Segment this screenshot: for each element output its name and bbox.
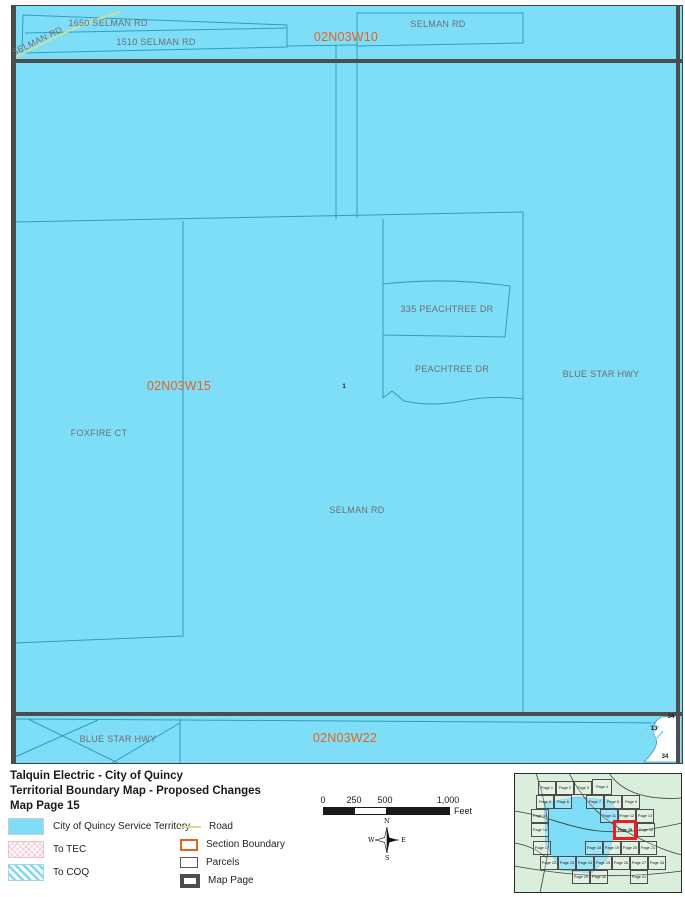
road-swatch-icon: [180, 826, 201, 828]
scale-bar-track: [323, 807, 450, 815]
legend-item-parcels-label: Parcels: [206, 857, 239, 868]
compass-s-label: S: [385, 854, 389, 862]
territory-swatch-icon: [8, 818, 44, 835]
inset-cell-page-21: Page 21: [639, 841, 657, 855]
inset-cell-page-17: Page 17: [533, 841, 551, 855]
inset-cell-page-27: Page 27: [630, 856, 648, 870]
parcel-label-1650-selman-rd: 1650 SELMAN RD: [68, 18, 147, 28]
small-label-1: 1: [342, 384, 345, 390]
legend-line-symbols: RoadSection BoundaryParcelsMap Page: [180, 820, 285, 887]
legend-item-to-tec: To TEC: [8, 841, 190, 858]
inset-cell-page-4: Page 4: [592, 779, 612, 795]
map-title-line1: Talquin Electric - City of Quincy: [10, 769, 261, 784]
scale-tick-250: 250: [346, 795, 361, 805]
inset-cell-page-6: Page 6: [554, 795, 572, 809]
road-label-peachtree-dr: PEACHTREE DR: [415, 364, 489, 374]
scale-tick-500: 500: [377, 795, 392, 805]
scale-segment-1: [355, 808, 386, 814]
legend-item-map-page: Map Page: [180, 874, 285, 887]
tec-swatch-icon: [8, 841, 44, 858]
title-block: Talquin Electric - City of Quincy Territ…: [10, 769, 261, 814]
parcel-label-1510-selman-rd: 1510 SELMAN RD: [116, 37, 195, 47]
inset-cell-page-20: Page 20: [621, 841, 639, 855]
legend-item-to-tec-label: To TEC: [53, 844, 86, 855]
map-title-line3: Map Page 15: [10, 799, 261, 814]
inset-cell-page-29: Page 29: [572, 870, 590, 884]
legend-item-road: Road: [180, 820, 285, 833]
scale-bar-unit: Feet: [454, 806, 472, 816]
inset-cell-page-19: Page 19: [603, 841, 621, 855]
inset-cell-page-30: Page 30: [590, 870, 608, 884]
scale-bar: Feet 02505001,000: [323, 795, 483, 817]
inset-cell-page-15: Page 15: [613, 820, 637, 840]
mappage-swatch-icon: [180, 874, 200, 888]
legend-item-section-boundary-label: Section Boundary: [206, 839, 285, 850]
legend-item-road-label: Road: [209, 821, 233, 832]
legend-item-map-page-label: Map Page: [208, 875, 254, 886]
parcel-label-335-peachtree-dr: 335 PEACHTREE DR: [401, 304, 494, 314]
inset-cell-page-10: Page 10: [531, 809, 549, 823]
inset-overview-map: Page 1Page 2Page 3Page 4Page 5Page 6Page…: [514, 773, 682, 893]
inset-cell-page-28: Page 28: [648, 856, 666, 870]
map-title-line2: Territorial Boundary Map - Proposed Chan…: [10, 784, 261, 799]
scale-tick-0: 0: [320, 795, 325, 805]
small-label-34-bottom: 34: [662, 754, 669, 760]
small-label-34-top: 34: [668, 714, 675, 720]
inset-cell-page-23: Page 23: [558, 856, 576, 870]
road-label-selman-rd-diagonal: SELMAN RD: [10, 24, 64, 57]
map-labels-layer: SELMAN RD1650 SELMAN RD1510 SELMAN RDSEL…: [0, 0, 685, 768]
scale-tick-1000: 1,000: [437, 795, 460, 805]
inset-cell-page-13: Page 13: [636, 809, 654, 823]
compass-e-label: E: [401, 836, 406, 844]
coq-swatch-icon: [8, 864, 44, 881]
inset-cell-page-14: Page 14: [531, 823, 549, 837]
legend-item-section-boundary: Section Boundary: [180, 838, 285, 851]
inset-cell-page-8: Page 8: [604, 795, 622, 809]
small-label-13: 13: [651, 726, 658, 732]
inset-cell-page-2: Page 2: [556, 781, 574, 795]
inset-page-grid: Page 1Page 2Page 3Page 4Page 5Page 6Page…: [514, 773, 682, 893]
road-label-blue-star-hwy-south: BLUE STAR HWY: [80, 734, 157, 744]
inset-cell-page-25: Page 25: [594, 856, 612, 870]
inset-cell-page-3: Page 3: [574, 781, 592, 795]
inset-cell-page-5: Page 5: [536, 795, 554, 809]
legend-item-to-coq: To COQ: [8, 864, 190, 881]
inset-cell-page-9: Page 9: [622, 795, 640, 809]
section-swatch-icon: [180, 839, 198, 851]
scale-segment-2: [386, 808, 449, 814]
road-label-blue-star-hwy-east: BLUE STAR HWY: [563, 369, 640, 379]
section-label-02n03w10: 02N03W10: [314, 30, 378, 44]
inset-cell-page-22: Page 22: [540, 856, 558, 870]
section-label-02n03w15: 02N03W15: [147, 379, 211, 393]
compass-n-label: N: [384, 817, 390, 825]
legend-item-city-of-quincy-service-territory: City of Quincy Service Territory: [8, 818, 190, 835]
inset-cell-page-31: Page 31: [630, 870, 648, 884]
inset-cell-page-24: Page 24: [576, 856, 594, 870]
inset-cell-page-26: Page 26: [612, 856, 630, 870]
road-label-selman-rd-center: SELMAN RD: [329, 505, 384, 515]
inset-cell-page-16: Page 16: [637, 823, 655, 837]
legend-item-city-of-quincy-service-territory-label: City of Quincy Service Territory: [53, 821, 190, 832]
road-label-foxfire-ct: FOXFIRE CT: [71, 428, 128, 438]
section-label-02n03w22: 02N03W22: [313, 731, 377, 745]
legend-area-fills: City of Quincy Service TerritoryTo TECTo…: [8, 818, 190, 881]
legend-item-to-coq-label: To COQ: [53, 867, 89, 878]
inset-cell-page-1: Page 1: [538, 781, 556, 795]
compass-w-label: W: [368, 836, 375, 844]
inset-cell-page-7: Page 7: [586, 795, 604, 809]
road-label-selman-rd-topright: SELMAN RD: [410, 19, 465, 29]
compass-rose: N W E S: [367, 818, 407, 862]
parcels-swatch-icon: [180, 857, 198, 868]
inset-cell-page-18: Page 18: [585, 841, 603, 855]
map-document: SELMAN RD1650 SELMAN RD1510 SELMAN RDSEL…: [0, 0, 685, 897]
legend-item-parcels: Parcels: [180, 856, 285, 869]
scale-segment-0: [324, 808, 355, 814]
